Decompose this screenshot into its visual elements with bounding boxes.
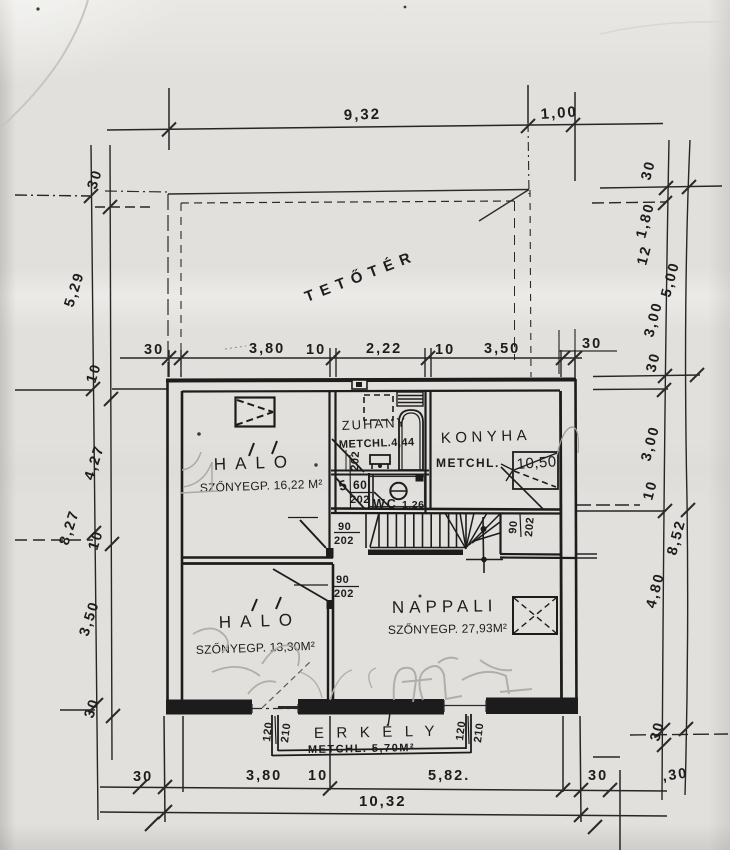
svg-text:30: 30: [85, 167, 106, 191]
svg-text:3,00: 3,00: [641, 300, 666, 339]
svg-text:3,80: 3,80: [249, 341, 285, 357]
svg-text:5,82.: 5,82.: [428, 768, 470, 784]
svg-text:30: 30: [638, 158, 659, 182]
svg-text:10: 10: [308, 768, 328, 784]
svg-text:210: 210: [472, 722, 486, 743]
svg-text:202: 202: [349, 451, 362, 471]
svg-text:SZŐNYEGP. 16,22 M²: SZŐNYEGP. 16,22 M²: [200, 476, 323, 495]
svg-text:10: 10: [84, 361, 105, 385]
svg-text:HALO: HALO: [218, 610, 301, 632]
svg-text:TETŐTÉR: TETŐTÉR: [302, 246, 420, 305]
svg-text:METCHL.4,44: METCHL.4,44: [339, 436, 416, 451]
svg-text:30: 30: [144, 342, 164, 358]
svg-text:90: 90: [336, 574, 349, 586]
svg-text:5: 5: [337, 476, 349, 494]
svg-text:8,27: 8,27: [57, 508, 83, 547]
svg-text:3,50: 3,50: [77, 599, 103, 638]
svg-text:30: 30: [582, 336, 602, 352]
svg-text:KONYHA: KONYHA: [441, 427, 532, 447]
svg-text:3,80: 3,80: [246, 768, 282, 784]
svg-text:90: 90: [338, 521, 351, 533]
svg-text:202: 202: [523, 516, 537, 537]
svg-text:30: 30: [643, 350, 664, 374]
svg-text:60: 60: [353, 478, 367, 492]
svg-text:4,80: 4,80: [643, 571, 668, 610]
svg-text:METCHL. 5,70M²: METCHL. 5,70M²: [308, 742, 415, 756]
svg-text:5,00: 5,00: [658, 260, 683, 299]
svg-text:12: 12: [634, 243, 655, 267]
svg-text:120: 120: [454, 720, 468, 741]
svg-text:30: 30: [133, 769, 153, 785]
svg-text:10: 10: [86, 528, 107, 552]
svg-text:10: 10: [435, 342, 455, 358]
svg-text:HALO: HALO: [213, 452, 296, 474]
svg-text:30: 30: [588, 768, 608, 784]
svg-text:120: 120: [261, 721, 275, 742]
svg-text:202: 202: [334, 535, 354, 547]
svg-text:30: 30: [82, 696, 103, 720]
svg-text:5,29: 5,29: [62, 270, 88, 309]
svg-text:2,22: 2,22: [366, 341, 402, 357]
svg-text:WC: WC: [373, 497, 398, 511]
svg-text:3,00: 3,00: [638, 424, 663, 463]
svg-text:1,80: 1,80: [633, 201, 658, 240]
svg-text:ZUHANY: ZUHANY: [341, 415, 407, 433]
svg-text:1,00: 1,00: [540, 103, 578, 123]
svg-text:210: 210: [279, 722, 293, 743]
svg-text:SZŐNYEGP. 13,30M²: SZŐNYEGP. 13,30M²: [196, 638, 316, 657]
svg-text:1,26: 1,26: [402, 499, 424, 511]
svg-text:10,32: 10,32: [359, 793, 407, 810]
svg-text:30: 30: [647, 719, 668, 743]
svg-text:8,52: 8,52: [664, 518, 689, 557]
svg-text:ERKÉLY: ERKÉLY: [314, 723, 447, 742]
svg-text:202: 202: [350, 494, 370, 506]
svg-text:METCHL.: METCHL.: [436, 456, 500, 470]
svg-text:90: 90: [507, 520, 520, 534]
svg-text:4,27: 4,27: [82, 443, 108, 482]
svg-text:10,50: 10,50: [516, 453, 557, 473]
svg-text:10: 10: [306, 342, 326, 358]
svg-text:NAPPALI: NAPPALI: [392, 596, 498, 617]
svg-text:3,50: 3,50: [484, 341, 520, 357]
svg-text:9,32: 9,32: [344, 106, 382, 124]
svg-text:202: 202: [334, 588, 354, 600]
svg-text:SZŐNYEGP. 27,93M²: SZŐNYEGP. 27,93M²: [388, 620, 507, 637]
svg-text:10: 10: [640, 478, 661, 502]
